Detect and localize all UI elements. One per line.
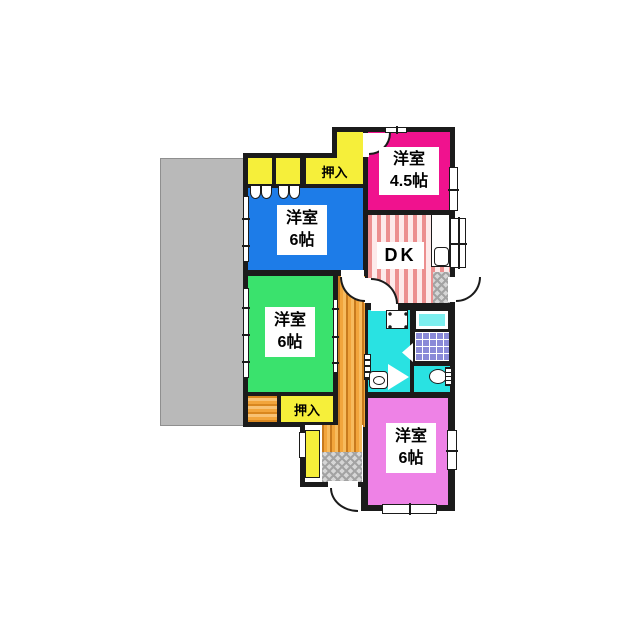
genkan-checker — [322, 452, 362, 482]
window-west-blue — [243, 196, 249, 262]
bedroom-nw-label: 洋室 6帖 — [277, 205, 327, 255]
genkan-door-arc — [330, 488, 358, 512]
window-tick — [396, 126, 398, 134]
window-south-violet — [382, 504, 437, 514]
closet-door-scallop — [261, 186, 272, 199]
oshiire-top-label: 押入 — [306, 158, 363, 184]
window-top-magenta — [385, 127, 407, 133]
window-tick — [332, 308, 339, 310]
door-gap-dk-corridor — [364, 278, 371, 303]
washbasin-bowl — [373, 376, 385, 385]
window-tick — [449, 243, 467, 245]
corridor-lower — [322, 425, 362, 452]
window-tick — [409, 503, 411, 515]
gray-area — [161, 159, 245, 425]
toilet-tank — [445, 367, 452, 386]
floor-plan: 洋室 6帖 洋室 4.5帖 洋室 6帖 洋室 6帖 DK 押入 押入 — [0, 0, 640, 640]
window-tick — [242, 245, 250, 247]
bedroom-s-label: 洋室 6帖 — [386, 423, 436, 473]
window-tick — [242, 307, 250, 309]
bath-floor — [414, 331, 450, 362]
bedroom-nw-size: 6帖 — [290, 230, 315, 252]
bedroom-ne-name: 洋室 — [393, 149, 425, 171]
shoe-cabinet — [305, 430, 320, 478]
oshiire-bottom-label: 押入 — [281, 396, 333, 422]
window-tick — [332, 336, 339, 338]
window-tick — [242, 361, 250, 363]
dk-text: DK — [385, 243, 417, 268]
window-tick — [332, 362, 339, 364]
window-west-entry — [299, 432, 306, 458]
closet-box-top — [337, 132, 363, 158]
door-gap-entrance-east — [448, 277, 456, 302]
closet-door-scallop — [278, 186, 289, 199]
door-gap-genkan-south — [328, 481, 358, 488]
window-tick — [242, 218, 250, 220]
dk-label: DK — [377, 242, 424, 269]
bedroom-s-name: 洋室 — [395, 426, 427, 448]
washbasin — [369, 371, 388, 389]
window-tick — [242, 334, 250, 336]
closet-small-2 — [276, 158, 300, 184]
bedroom-w-name: 洋室 — [274, 310, 306, 332]
door-gap-bedroom-nw — [341, 270, 364, 277]
window-east-magenta — [449, 167, 458, 211]
bedroom-ne-size: 4.5帖 — [390, 171, 428, 193]
bedroom-nw-name: 洋室 — [286, 208, 318, 230]
window-west-green — [243, 288, 249, 378]
window-tick — [446, 450, 458, 452]
window-east-violet — [447, 430, 457, 470]
bedroom-s-size: 6帖 — [399, 448, 424, 470]
kitchen-counter — [431, 214, 450, 267]
closet-door-scallop — [250, 186, 261, 199]
window-tick — [448, 189, 459, 191]
bedroom-w-size: 6帖 — [278, 332, 303, 354]
kitchen-sink — [434, 247, 449, 266]
bay-window-dk — [450, 218, 466, 268]
bedroom-w-label: 洋室 6帖 — [265, 307, 315, 357]
closet-wood — [248, 396, 277, 422]
bedroom-ne-label: 洋室 4.5帖 — [379, 147, 439, 195]
entrance-door-arc — [456, 277, 481, 302]
closet-small-1 — [248, 158, 272, 184]
closet-door-scallop — [289, 186, 300, 199]
washing-machine — [386, 310, 408, 329]
bathtub — [415, 310, 449, 330]
sliding-door-green-corridor — [333, 299, 338, 373]
